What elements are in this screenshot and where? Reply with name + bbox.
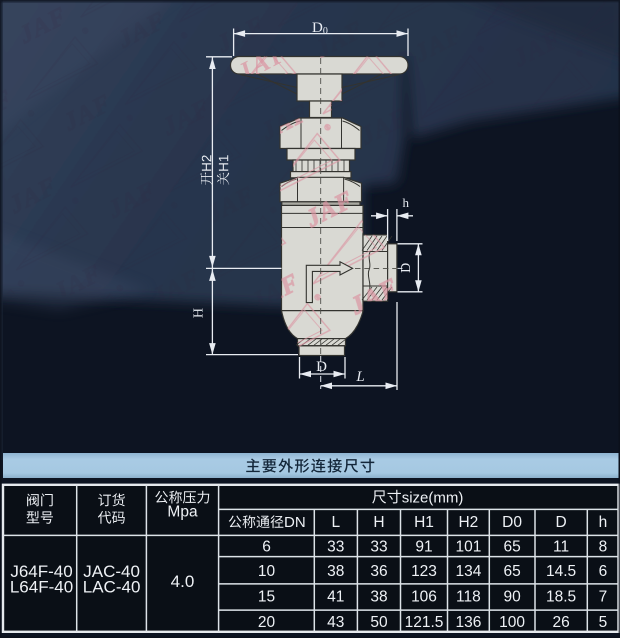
svg-text:4.0: 4.0 [171,572,195,591]
svg-text:43: 43 [327,614,344,631]
svg-text:100: 100 [499,614,525,631]
svg-text:LAC-40: LAC-40 [83,578,141,597]
svg-text:H1: H1 [414,514,434,531]
svg-text:26: 26 [552,614,569,631]
svg-text:91: 91 [415,539,432,556]
svg-text:20: 20 [258,614,276,631]
svg-text:size(mm): size(mm) [402,489,464,506]
svg-text:Mpa: Mpa [167,503,198,520]
svg-text:41: 41 [327,589,344,606]
svg-text:H: H [192,308,207,318]
svg-text:36: 36 [370,563,387,580]
svg-text:D: D [316,359,327,375]
svg-text:h: h [402,195,409,210]
svg-text:121.5: 121.5 [405,614,444,631]
svg-text:D: D [555,514,566,531]
svg-text:L64F-40: L64F-40 [10,578,73,597]
svg-text:50: 50 [370,614,388,631]
svg-text:L: L [355,369,364,385]
svg-text:11: 11 [553,539,569,556]
svg-text:101: 101 [455,539,481,556]
svg-text:118: 118 [456,589,481,606]
svg-text:8: 8 [599,539,608,556]
svg-text:134: 134 [455,563,481,580]
svg-text:L: L [331,514,340,531]
svg-text:6: 6 [262,539,271,556]
svg-text:90: 90 [503,589,521,606]
svg-text:136: 136 [455,614,481,631]
svg-text:106: 106 [411,589,437,606]
svg-text:65: 65 [503,563,520,580]
svg-text:33: 33 [370,539,387,556]
svg-text:38: 38 [327,563,344,580]
svg-text:7: 7 [599,589,608,606]
svg-text:DN: DN [284,514,306,531]
svg-text:5: 5 [599,614,608,631]
svg-text:38: 38 [370,589,387,606]
svg-text:H2: H2 [458,514,478,531]
svg-text:H: H [373,514,384,531]
svg-text:h: h [599,514,608,531]
svg-text:15: 15 [258,589,275,606]
svg-text:123: 123 [411,563,437,580]
svg-text:65: 65 [503,539,520,556]
svg-text:33: 33 [327,539,344,556]
svg-text:D: D [399,263,414,273]
svg-text:D0: D0 [502,514,522,531]
svg-text:18.5: 18.5 [546,589,576,606]
svg-text:6: 6 [599,563,608,580]
svg-text:10: 10 [258,563,276,580]
svg-text:14.5: 14.5 [546,563,576,580]
